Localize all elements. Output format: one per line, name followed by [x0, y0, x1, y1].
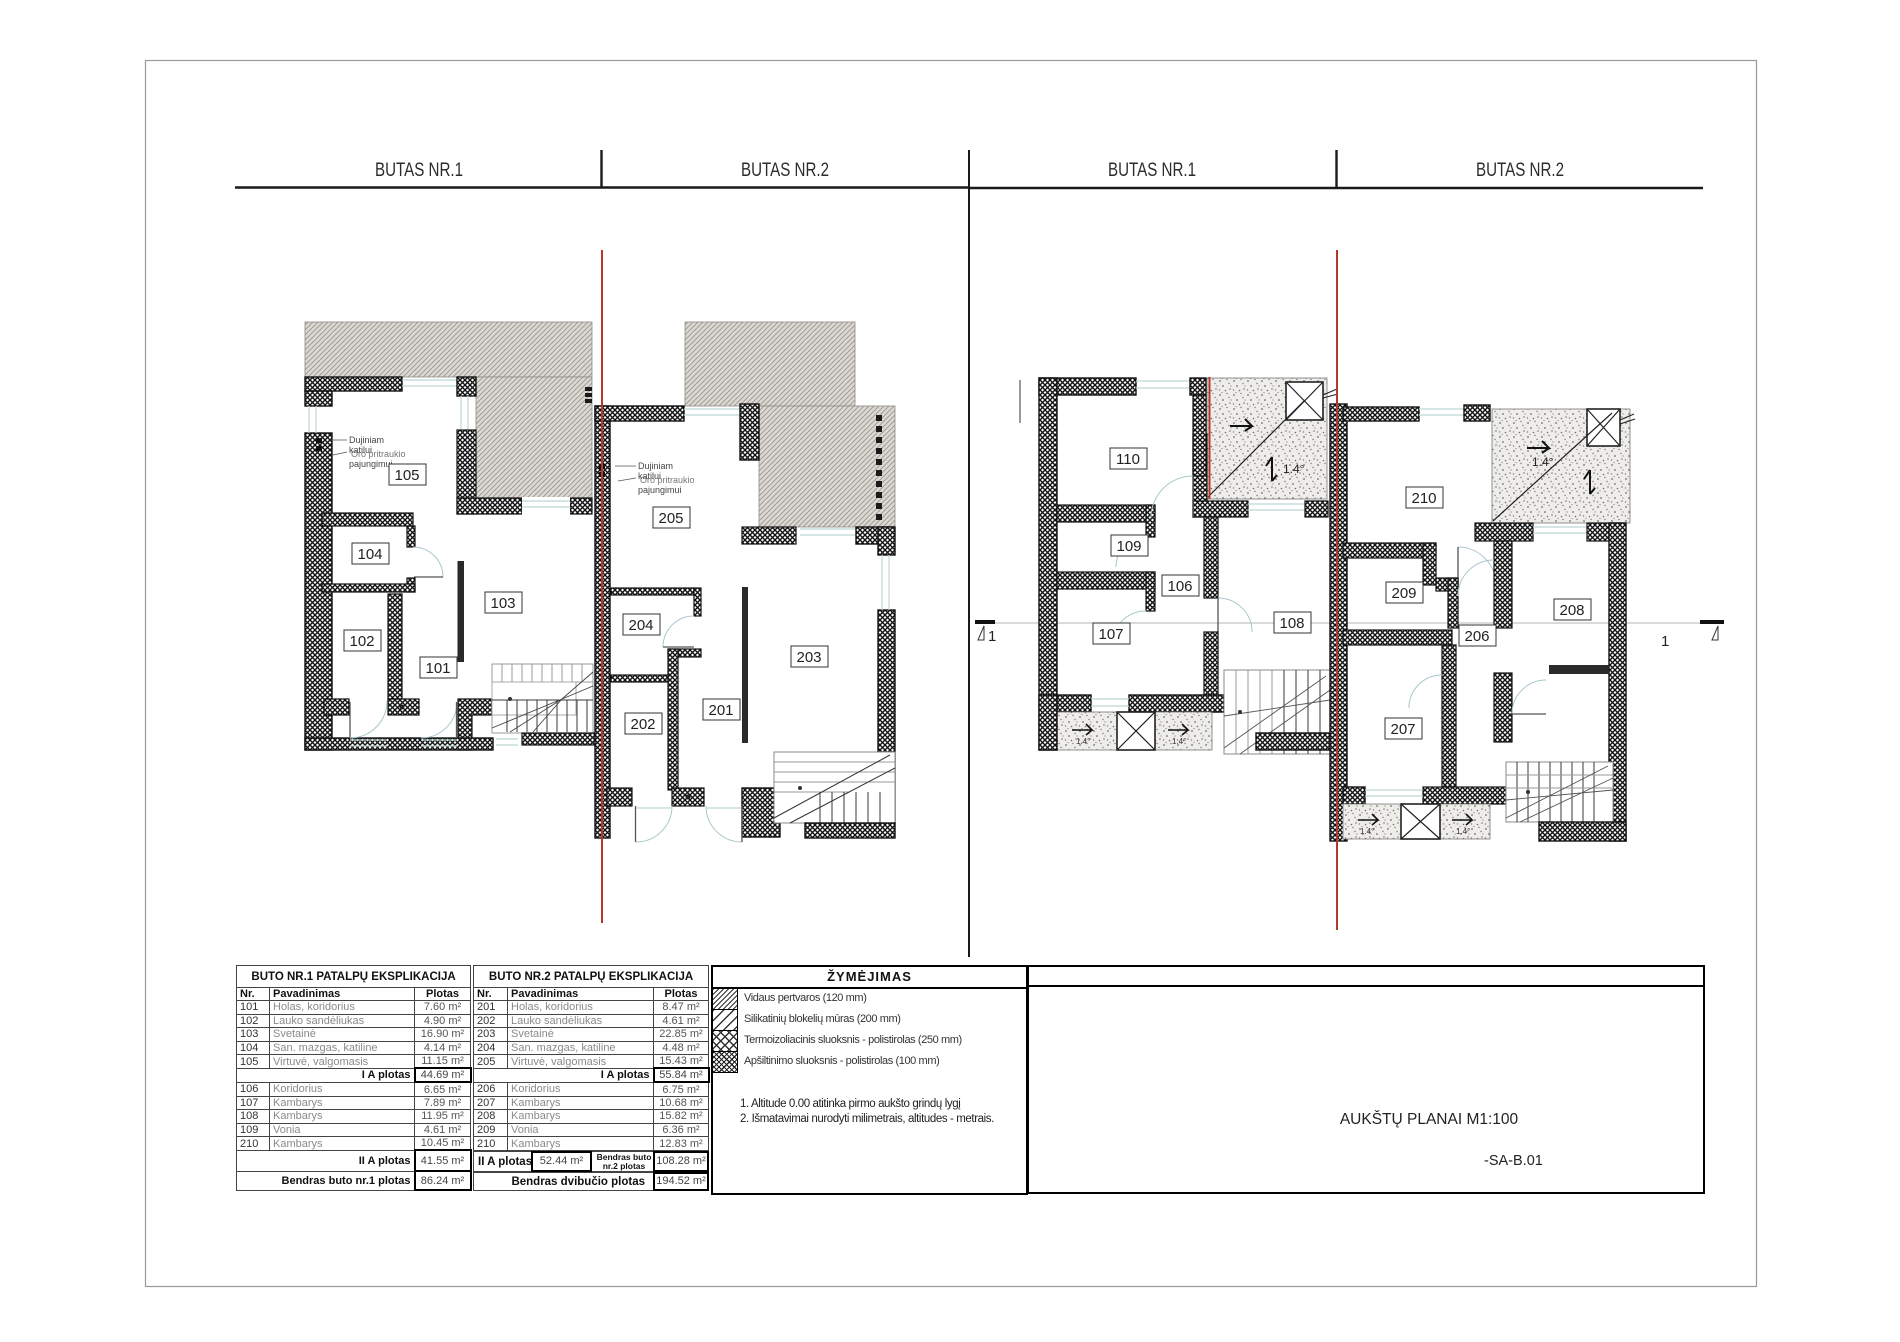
svg-text:209: 209	[1391, 585, 1416, 602]
svg-text:Dujiniam: Dujiniam	[638, 461, 673, 471]
svg-text:1: 1	[988, 628, 996, 645]
svg-text:Dujiniam: Dujiniam	[349, 435, 384, 445]
svg-text:206: 206	[1464, 628, 1489, 645]
svg-text:1.4°: 1.4°	[1360, 827, 1374, 836]
svg-text:BUTAS NR.1: BUTAS NR.1	[375, 160, 463, 181]
svg-text:1.4°: 1.4°	[1076, 737, 1090, 746]
svg-text:1.4°: 1.4°	[1283, 462, 1305, 476]
svg-text:207: 207	[1390, 721, 1415, 738]
svg-text:Oro pritraukio: Oro pritraukio	[640, 475, 695, 485]
svg-text:107: 107	[1098, 626, 1123, 643]
svg-text:108: 108	[1279, 615, 1304, 632]
svg-text:1.4°: 1.4°	[1172, 737, 1186, 746]
svg-text:pajungimui: pajungimui	[638, 485, 682, 495]
svg-text:101: 101	[425, 660, 450, 677]
svg-text:210: 210	[1411, 490, 1436, 507]
svg-text:1.4°: 1.4°	[1532, 455, 1554, 469]
svg-text:106: 106	[1167, 578, 1192, 595]
svg-text:205: 205	[658, 510, 683, 527]
svg-text:BUTAS NR.1: BUTAS NR.1	[1108, 160, 1196, 181]
svg-text:Oro pritraukio: Oro pritraukio	[351, 449, 406, 459]
svg-text:103: 103	[490, 595, 515, 612]
svg-text:203: 203	[796, 649, 821, 666]
svg-text:109: 109	[1116, 538, 1141, 555]
svg-text:BUTAS NR.2: BUTAS NR.2	[741, 160, 829, 181]
svg-text:105: 105	[394, 467, 419, 484]
svg-text:201: 201	[708, 702, 733, 719]
svg-text:110: 110	[1116, 451, 1140, 468]
svg-text:204: 204	[628, 617, 653, 634]
svg-text:202: 202	[630, 716, 655, 733]
svg-text:BUTAS NR.2: BUTAS NR.2	[1476, 160, 1564, 181]
svg-text:1.4°: 1.4°	[1456, 827, 1470, 836]
svg-text:104: 104	[357, 546, 382, 563]
svg-text:208: 208	[1559, 602, 1584, 619]
svg-text:1: 1	[1661, 633, 1669, 650]
svg-text:102: 102	[349, 633, 374, 650]
svg-text:pajungimui: pajungimui	[349, 459, 393, 469]
